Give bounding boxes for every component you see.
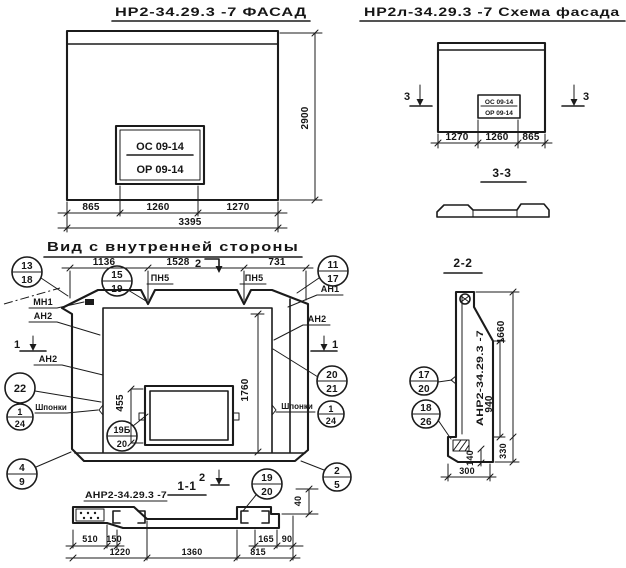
- schema-title: НР2л-34.29.3 -7 Схема фасада: [364, 5, 620, 19]
- dim-815: 815: [250, 547, 266, 557]
- callout-4-9: 4 9: [7, 452, 71, 489]
- facade-title: НР2-34.29.3 -7 ФАСАД: [115, 5, 307, 19]
- dim-1760: 1760: [240, 378, 251, 401]
- label-pn5-right: ПН5: [240, 273, 266, 300]
- section-1-1-label: АНР2-34.29.3 -7: [85, 490, 167, 500]
- rebar-zone: [76, 509, 104, 521]
- marker-2-top-label: 2: [195, 258, 201, 270]
- label-keys-left: Шпонки: [35, 403, 98, 413]
- drawing-canvas: НР2-34.29.3 -7 ФАСАД ОС 09-14 ОР 09-14 2…: [0, 0, 626, 568]
- schema-dim-865: 865: [522, 132, 540, 143]
- facade-dim-1270: 1270: [226, 202, 249, 213]
- schema-view: НР2л-34.29.3 -7 Схема фасада ОС 09-14 ОР…: [360, 5, 625, 217]
- dim-330: 330: [498, 443, 508, 459]
- svg-text:18: 18: [21, 275, 33, 286]
- inner-marker-1-right: 1: [311, 336, 338, 351]
- svg-text:20: 20: [261, 487, 273, 498]
- callout-20-21: 20 21: [273, 349, 347, 396]
- callout-22: 22: [5, 373, 101, 403]
- label-an1: АН1: [288, 284, 343, 307]
- dim-1220: 1220: [110, 547, 131, 557]
- facade-dims-bottom: 865 1260 1270 3395: [58, 186, 287, 232]
- svg-text:1: 1: [332, 339, 338, 351]
- callout-19-20: 19 20: [243, 469, 282, 511]
- inner-dims-top: 1136 1528 731: [62, 257, 313, 300]
- svg-text:20: 20: [418, 384, 430, 395]
- window-opening: [139, 386, 239, 445]
- svg-text:26: 26: [420, 417, 432, 428]
- svg-text:18: 18: [420, 403, 432, 414]
- svg-text:17: 17: [418, 370, 430, 381]
- facade-stamp-line1: ОС 09-14: [136, 141, 185, 153]
- svg-text:13: 13: [21, 261, 33, 272]
- facade-view: НР2-34.29.3 -7 ФАСАД ОС 09-14 ОР 09-14 2…: [58, 5, 322, 232]
- dim-150: 150: [106, 534, 122, 544]
- inner-dim-opening: 1760: [240, 311, 264, 455]
- callout-19b-20: 19Б 20: [107, 414, 148, 451]
- svg-text:19: 19: [111, 284, 123, 295]
- schema-stamp-line2: ОР 09-14: [485, 110, 513, 117]
- svg-text:11: 11: [328, 260, 339, 271]
- svg-text:2: 2: [334, 466, 340, 477]
- section-3-3-profile: [437, 204, 549, 217]
- svg-text:20: 20: [117, 439, 127, 449]
- svg-text:АН2: АН2: [39, 354, 58, 364]
- schema-section-marker-right: 3: [562, 85, 589, 106]
- svg-text:АН2: АН2: [308, 314, 327, 324]
- rebar-dots: [80, 512, 99, 519]
- section-2-2-title: 2-2: [453, 256, 472, 270]
- inner-dim-1528: 1528: [166, 257, 189, 268]
- callout-15-19: 15 19: [102, 266, 146, 301]
- drawing-sheet: НР2-34.29.3 -7 ФАСАД ОС 09-14 ОР 09-14 2…: [0, 0, 626, 568]
- marker-3-right-arrow: [571, 99, 578, 106]
- dim-140: 140: [465, 450, 475, 466]
- dim-455: 455: [115, 394, 126, 412]
- inner-view-title: Вид с внутренней стороны: [47, 239, 299, 254]
- section-3-3-title: 3-3: [492, 166, 511, 180]
- svg-text:Шпонки: Шпонки: [281, 402, 313, 411]
- facade-dim-height: 2900: [280, 30, 322, 203]
- dim-1360: 1360: [182, 547, 203, 557]
- marker-3-left-label: 3: [404, 91, 410, 103]
- label-an2-left2: АН2: [34, 354, 103, 375]
- svg-text:1: 1: [328, 404, 333, 414]
- svg-text:Шпонки: Шпонки: [35, 403, 67, 412]
- callout-18-26: 18 26: [412, 400, 451, 439]
- svg-text:21: 21: [326, 384, 338, 395]
- svg-text:1: 1: [14, 339, 20, 351]
- svg-text:ПН5: ПН5: [245, 273, 264, 283]
- schema-dim-1270: 1270: [445, 132, 468, 143]
- svg-text:ПН5: ПН5: [151, 273, 170, 283]
- dim-510: 510: [82, 534, 98, 544]
- svg-text:15: 15: [111, 270, 123, 281]
- section-1-1-title: 1-1: [177, 479, 196, 493]
- dim-300: 300: [459, 466, 475, 476]
- marker-2-top-arrow: [216, 266, 223, 273]
- svg-text:24: 24: [326, 416, 336, 426]
- inner-marker-1-left: 1: [14, 336, 46, 351]
- foot-hatch: [453, 440, 469, 451]
- schema-dim-1260: 1260: [485, 132, 508, 143]
- svg-text:1: 1: [17, 407, 22, 417]
- facade-dim-865: 865: [82, 202, 100, 213]
- inner-dim-731: 731: [268, 257, 286, 268]
- schema-stamp-box: ОС 09-14 ОР 09-14: [478, 95, 520, 118]
- dim-165: 165: [258, 534, 274, 544]
- label-keys-right: Шпонки: [276, 402, 315, 412]
- callout-1-24-right: 1 24: [318, 401, 344, 427]
- callout-1-24-left: 1 24: [7, 404, 33, 430]
- callout-13-18: 13 18: [12, 257, 68, 296]
- label-mn1: МН1: [29, 297, 84, 308]
- dim-940: 940: [484, 395, 495, 413]
- svg-text:МН1: МН1: [33, 297, 53, 307]
- mn1-insert-mark: [85, 299, 94, 305]
- dim-40: 40: [293, 496, 303, 506]
- facade-stamp-box: ОС 09-14 ОР 09-14: [116, 126, 204, 184]
- label-an2-left1: АН2: [29, 311, 100, 335]
- svg-text:9: 9: [19, 477, 25, 488]
- inner-panel-lines: [75, 299, 305, 453]
- callout-2-5: 2 5: [301, 461, 351, 491]
- facade-dim-3395: 3395: [178, 217, 201, 228]
- facade-dim-1260: 1260: [146, 202, 169, 213]
- schema-stamp-line1: ОС 09-14: [485, 99, 514, 106]
- marker-3-right-label: 3: [583, 91, 589, 103]
- svg-text:19: 19: [261, 473, 273, 484]
- svg-text:19Б: 19Б: [113, 425, 130, 435]
- inner-marker-2-top: 2: [195, 258, 223, 273]
- stirrup-marks: [113, 511, 269, 523]
- schema-dims-bottom: 1270 1260 865: [431, 120, 552, 148]
- label-an2-right: АН2: [274, 314, 330, 340]
- svg-text:20: 20: [326, 370, 338, 381]
- svg-text:5: 5: [334, 480, 340, 491]
- schema-section-marker-left: 3: [404, 85, 432, 106]
- svg-text:АН2: АН2: [34, 311, 53, 321]
- dim-90: 90: [282, 534, 292, 544]
- svg-text:2: 2: [199, 472, 205, 484]
- svg-text:22: 22: [14, 383, 26, 395]
- svg-text:АН1: АН1: [321, 284, 340, 294]
- svg-text:24: 24: [15, 419, 25, 429]
- svg-text:4: 4: [19, 463, 25, 474]
- inner-view: Вид с внутренней стороны 1136 1528 731 2: [4, 239, 351, 511]
- section-1-1-dim-40: 40: [282, 486, 318, 517]
- inner-marker-2-bottom: 2: [199, 470, 229, 485]
- callout-17-20: 17 20: [410, 367, 452, 395]
- inner-panel-outline: [62, 290, 308, 461]
- section-2-2: 2-2 АНР2-34.29.3 -7 1660 940 330 140 300: [410, 256, 519, 481]
- facade-stamp-line2: ОР 09-14: [136, 164, 184, 176]
- marker-3-left-arrow: [417, 99, 424, 106]
- section-3-3: 3-3: [437, 166, 549, 217]
- facade-dim-2900: 2900: [300, 106, 311, 129]
